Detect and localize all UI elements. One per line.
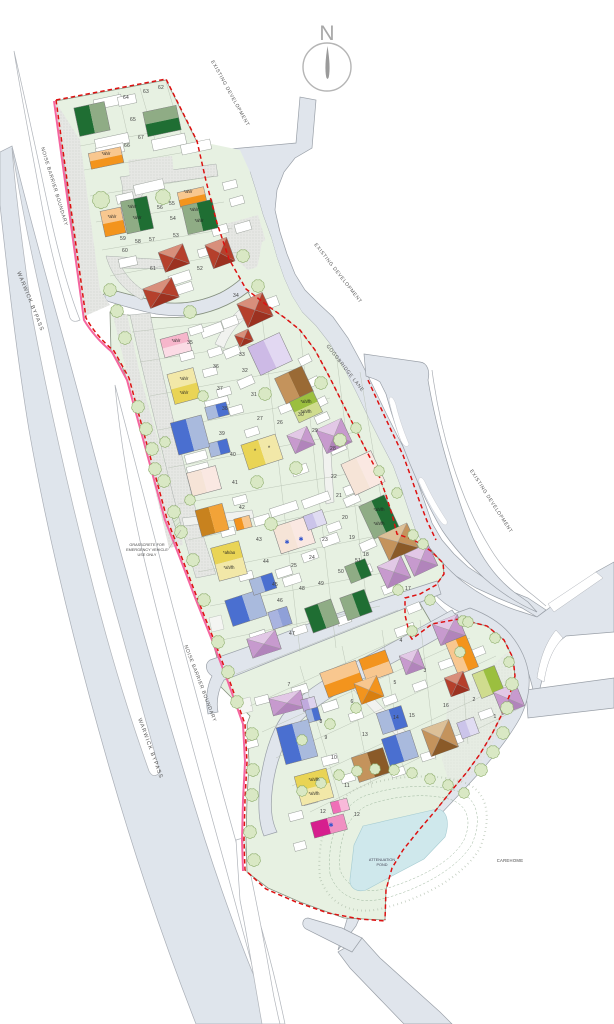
svg-text:41: 41 [232,480,238,486]
svg-text:42: 42 [239,505,245,511]
svg-text:31: 31 [251,392,257,398]
svg-text:58: 58 [135,239,141,245]
svg-text:POND: POND [377,863,388,867]
svg-text:55: 55 [169,201,175,207]
svg-text:EMERGENCY VEHICLE: EMERGENCY VEHICLE [126,548,168,552]
svg-text:N: N [319,22,334,45]
svg-text:4: 4 [400,638,403,644]
svg-text:13: 13 [362,732,368,738]
svg-text:3: 3 [424,668,427,674]
svg-text:64: 64 [123,95,129,101]
svg-text:*ah/r: *ah/r [102,151,111,156]
svg-text:48: 48 [299,586,305,592]
svg-text:10: 10 [331,755,337,761]
svg-text:16: 16 [443,703,449,709]
svg-text:47: 47 [289,631,295,637]
svg-text:CAREHOME: CAREHOME [497,858,524,863]
svg-text:25: 25 [291,563,297,569]
svg-text:*ah/r: *ah/r [128,204,137,209]
svg-text:46: 46 [277,598,283,604]
svg-text:EXISTING DEVELOPMENT: EXISTING DEVELOPMENT [312,242,363,304]
svg-text:66: 66 [124,143,130,149]
svg-text:8: 8 [320,719,323,725]
svg-text:27: 27 [257,416,263,422]
svg-text:34: 34 [233,293,239,299]
svg-text:17: 17 [405,586,411,592]
svg-text:*ah/r: *ah/r [184,189,193,194]
svg-text:32: 32 [242,368,248,374]
svg-text:18: 18 [363,552,369,558]
svg-text:22: 22 [331,474,337,480]
svg-text:53: 53 [173,233,179,239]
svg-text:60: 60 [122,248,128,254]
svg-text:15: 15 [409,713,415,719]
svg-text:28: 28 [330,446,336,452]
svg-text:6: 6 [351,699,354,705]
svg-text:36: 36 [213,364,219,370]
svg-text:35: 35 [187,340,193,346]
svg-text:23: 23 [322,537,328,543]
svg-text:26: 26 [277,420,283,426]
svg-text:*ah/fh: *ah/fh [374,521,386,526]
svg-text:12: 12 [354,812,360,818]
svg-text:*ah/r: *ah/r [180,376,189,381]
svg-text:62: 62 [158,85,164,91]
svg-text:12: 12 [320,809,326,815]
svg-text:2: 2 [473,697,476,703]
svg-text:38: 38 [222,406,228,412]
svg-text:1: 1 [494,714,497,720]
svg-text:*ah/fh: *ah/fh [309,777,321,782]
svg-text:67: 67 [138,135,144,141]
svg-text:49: 49 [318,581,324,587]
svg-text:56: 56 [157,205,163,211]
svg-text:*ah/fh: *ah/fh [309,791,321,796]
svg-text:50: 50 [338,569,344,575]
svg-text:✱: ✱ [328,822,333,829]
svg-text:*ah/fh: *ah/fh [301,399,313,404]
svg-text:*ah/r: *ah/r [172,338,181,343]
svg-text:51: 51 [355,558,361,564]
svg-text:57: 57 [149,237,155,243]
svg-text:44: 44 [263,559,269,565]
svg-text:EXISTING DEVELOPMENT: EXISTING DEVELOPMENT [209,59,250,127]
svg-text:11: 11 [344,783,350,789]
svg-text:54: 54 [170,216,176,222]
svg-text:59: 59 [120,236,126,242]
svg-text:33: 33 [239,352,245,358]
svg-text:45: 45 [272,582,278,588]
svg-text:*ah/r: *ah/r [108,214,117,219]
svg-text:19: 19 [349,535,355,541]
svg-text:65: 65 [130,117,136,123]
svg-text:40: 40 [230,452,236,458]
svg-text:5: 5 [394,680,397,686]
svg-text:37: 37 [217,386,223,392]
svg-text:*ah/ao: *ah/ao [223,550,236,555]
svg-text:61: 61 [150,266,156,272]
svg-text:*ah/r: *ah/r [195,218,204,223]
svg-text:✱: ✱ [298,536,303,543]
svg-text:29: 29 [312,428,318,434]
svg-text:14: 14 [393,715,399,721]
svg-text:63: 63 [143,89,149,95]
svg-text:*ah/r: *ah/r [133,215,142,220]
svg-text:✱: ✱ [284,539,289,546]
svg-text:20: 20 [342,515,348,521]
svg-text:*ah/fh: *ah/fh [374,507,386,512]
svg-text:*ah/fh: *ah/fh [301,409,313,414]
svg-text:21: 21 [336,493,342,499]
svg-text:*ah/r: *ah/r [190,207,199,212]
svg-text:43: 43 [256,537,262,543]
svg-text:24: 24 [309,555,315,561]
svg-text:39: 39 [219,431,225,437]
svg-text:EXISTING DEVELOPMENT: EXISTING DEVELOPMENT [468,469,514,535]
svg-text:*ah/fh: *ah/fh [224,565,236,570]
svg-text:7: 7 [288,682,291,688]
svg-text:USE ONLY: USE ONLY [138,553,157,557]
svg-text:9: 9 [325,735,328,741]
svg-text:ATTENUATION: ATTENUATION [369,858,395,862]
svg-text:*ah/r: *ah/r [180,390,189,395]
svg-text:52: 52 [197,266,203,272]
svg-text:GRASSCRETE FOR: GRASSCRETE FOR [129,543,164,547]
